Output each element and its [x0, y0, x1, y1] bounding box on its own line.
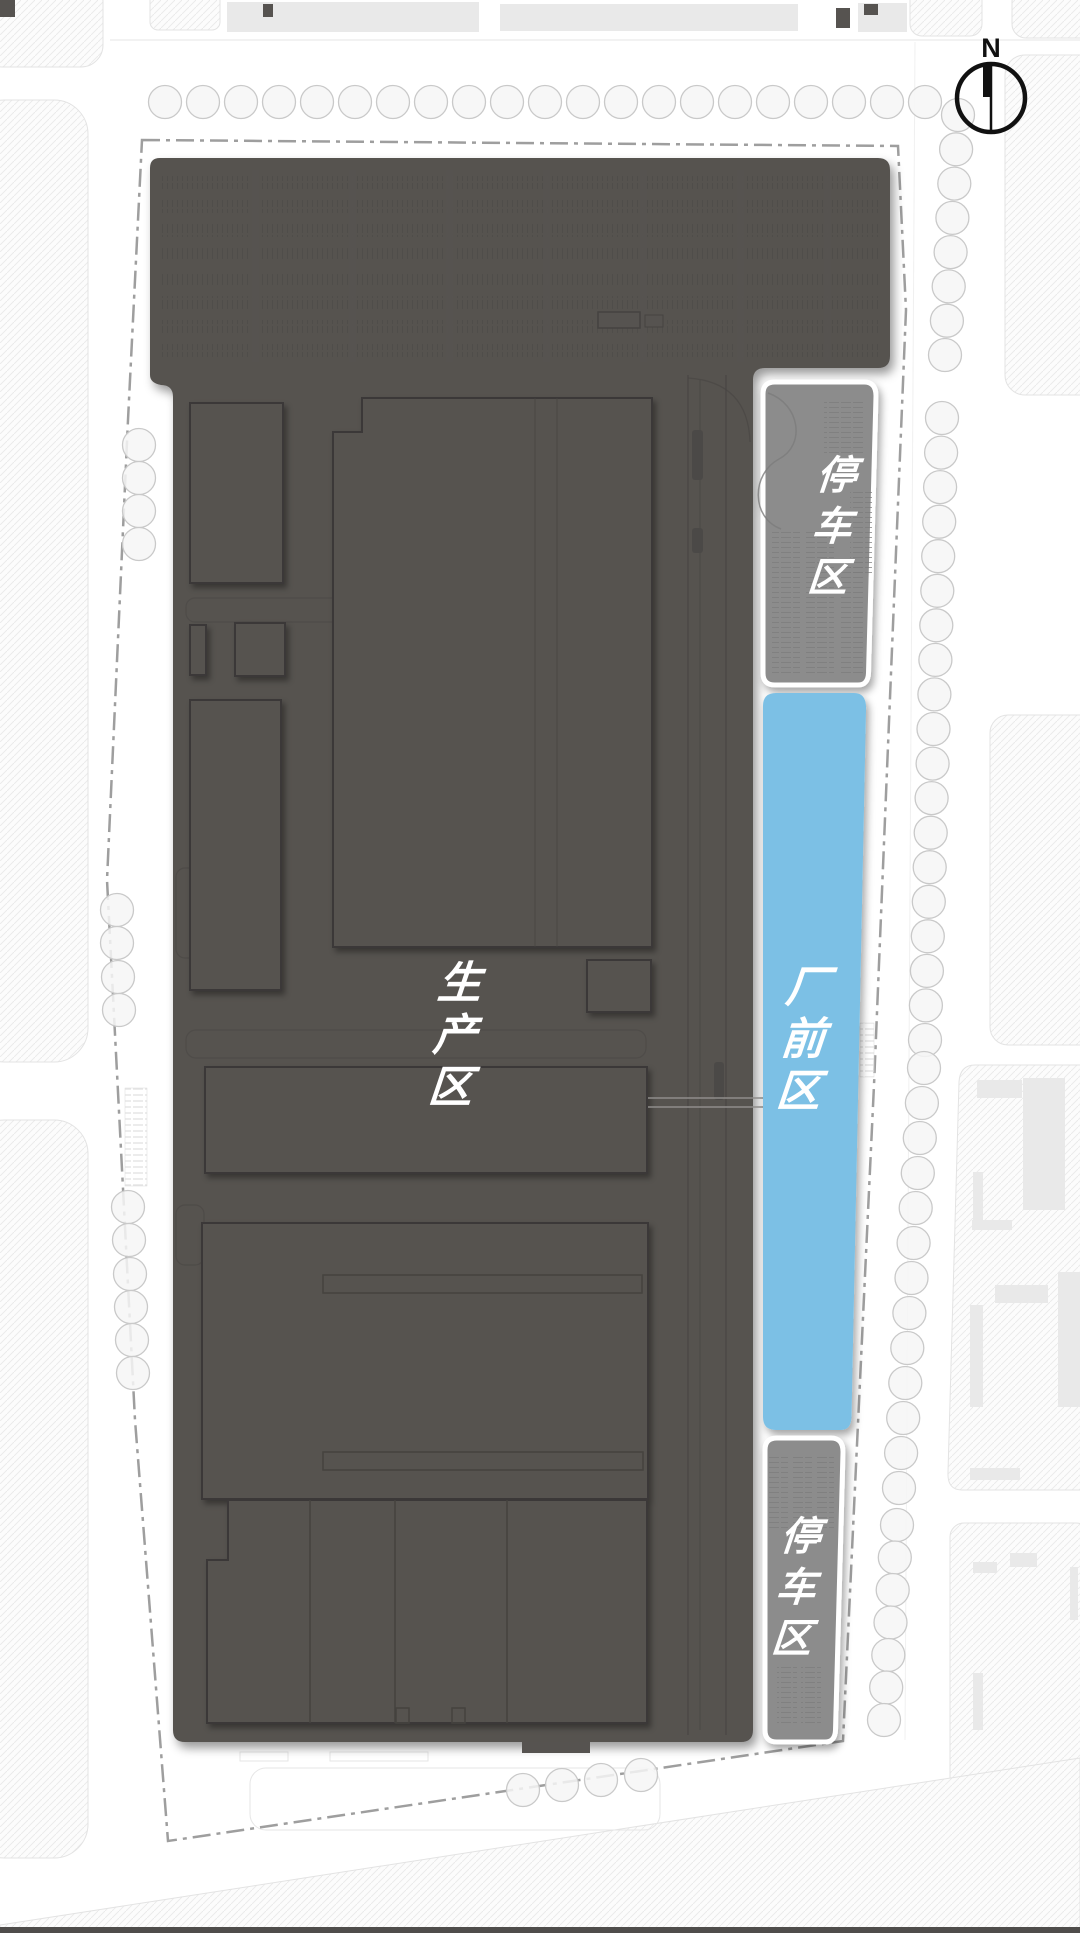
building-main-hall [333, 398, 652, 947]
tree-icon [415, 86, 448, 119]
site-plan-canvas: 生 产 区 厂 前 区 停 车 区 停 车 区 N [0, 0, 1080, 1933]
tree-icon [872, 1639, 905, 1672]
parcel-left-lower [0, 1120, 88, 1858]
tree-icon [187, 86, 220, 119]
tree-icon [113, 1224, 146, 1257]
tree-icon [926, 402, 959, 435]
parcel-top-right [1012, 0, 1080, 38]
tree-icon [507, 1774, 540, 1807]
site-plan-drawing [0, 0, 1080, 1933]
building-b [190, 700, 281, 990]
parcel-top-small [150, 0, 220, 30]
tree-icon [546, 1769, 579, 1802]
north-label: N [975, 33, 1007, 64]
tree-icon [116, 1324, 149, 1357]
tree-icon [103, 994, 136, 1027]
tree-icon [905, 1087, 938, 1120]
tree-icon [876, 1574, 909, 1607]
parcel-bottom [0, 1758, 1080, 1928]
building-lower-hall [202, 1223, 648, 1499]
parcel-left-upper [0, 100, 88, 1062]
tree-icon [101, 927, 134, 960]
parcel-top-left [0, 0, 103, 67]
tree-icon [911, 920, 944, 953]
tree-icon [123, 495, 156, 528]
tree-icon [909, 989, 942, 1022]
tree-icon [101, 894, 134, 927]
tree-icon [719, 86, 752, 119]
tree-icon [925, 436, 958, 469]
tree-icon [874, 1606, 907, 1639]
tree-icon [757, 86, 790, 119]
tree-icon [913, 851, 946, 884]
building-top-strip-b [500, 4, 798, 31]
context-building-corner [0, 0, 15, 17]
tree-icon [940, 133, 973, 166]
tree-icon [114, 1258, 147, 1291]
tree-icon [923, 505, 956, 538]
tree-icon [889, 1367, 922, 1400]
tree-icon [908, 1052, 941, 1085]
tree-icon [910, 954, 943, 987]
tree-icon [887, 1402, 920, 1435]
tree-icon [909, 86, 942, 119]
bottom-edge-strip [0, 1927, 1080, 1933]
parcel-right-2 [990, 715, 1080, 1045]
tree-icon [585, 1764, 618, 1797]
tree-icon [123, 528, 156, 561]
tree-icon [263, 86, 296, 119]
tree-icon [878, 1541, 911, 1574]
crosswalk-right [860, 1023, 874, 1077]
tree-icon [918, 678, 951, 711]
tree-icon [112, 1191, 145, 1224]
tree-icon [625, 1759, 658, 1792]
tree-icon [920, 609, 953, 642]
building-a [190, 403, 283, 583]
tree-icon [915, 782, 948, 815]
tree-icon [453, 86, 486, 119]
tree-icon [922, 540, 955, 573]
tree-icon [885, 1437, 918, 1470]
tree-icon [301, 86, 334, 119]
zone-parking-south [765, 1438, 843, 1742]
building-top-slot-2 [836, 8, 850, 28]
tree-icon [491, 86, 524, 119]
tree-icon [891, 1332, 924, 1365]
tree-icon [377, 86, 410, 119]
tree-icon [899, 1192, 932, 1225]
tree-icon [917, 713, 950, 746]
tree-icon [117, 1357, 150, 1390]
tree-icon [870, 1671, 903, 1704]
tree-icon [225, 86, 258, 119]
tree-icon [529, 86, 562, 119]
building-bottom-row [207, 1500, 647, 1723]
tree-icon [893, 1297, 926, 1330]
parcel-top-mid-right [910, 0, 982, 36]
tree-icon [930, 304, 963, 337]
tree-icon [916, 747, 949, 780]
tree-icon [605, 86, 638, 119]
tree-icon [567, 86, 600, 119]
tree-icon [643, 86, 676, 119]
tree-icon [938, 167, 971, 200]
tree-icon [123, 462, 156, 495]
tree-icon [936, 201, 969, 234]
tree-icon [914, 816, 947, 849]
zone-factory-front [763, 693, 866, 1430]
building-small-3 [587, 960, 651, 1012]
tree-icon [924, 471, 957, 504]
building-small-1 [190, 625, 206, 675]
building-mid [205, 1067, 647, 1173]
tree-icon [115, 1291, 148, 1324]
tree-icon [895, 1262, 928, 1295]
tree-icon [903, 1122, 936, 1155]
tree-icon [102, 961, 135, 994]
tree-icon [681, 86, 714, 119]
tree-icon [339, 86, 372, 119]
tree-icon [868, 1704, 901, 1737]
building-top-slot-1 [263, 4, 273, 17]
zone-production [0, 0, 890, 1753]
building-small-2 [235, 623, 285, 676]
tree-icon [883, 1472, 916, 1505]
tree-icon [934, 236, 967, 269]
tree-icon [833, 86, 866, 119]
tree-icon [929, 339, 962, 372]
building-top-slot-3 [864, 4, 878, 15]
tree-icon [897, 1227, 930, 1260]
tree-icon [921, 574, 954, 607]
zone-parking-north [758, 382, 876, 685]
tree-icon [881, 1509, 914, 1542]
tree-icon [871, 86, 904, 119]
tree-icon [919, 643, 952, 676]
tree-icon [901, 1157, 934, 1190]
tree-icon [912, 885, 945, 918]
tree-icon [123, 429, 156, 462]
parcel-right-1 [1005, 55, 1080, 395]
tree-icon [932, 270, 965, 303]
tree-icon [795, 86, 828, 119]
tree-icon [149, 86, 182, 119]
crosswalk-left [125, 1088, 147, 1186]
